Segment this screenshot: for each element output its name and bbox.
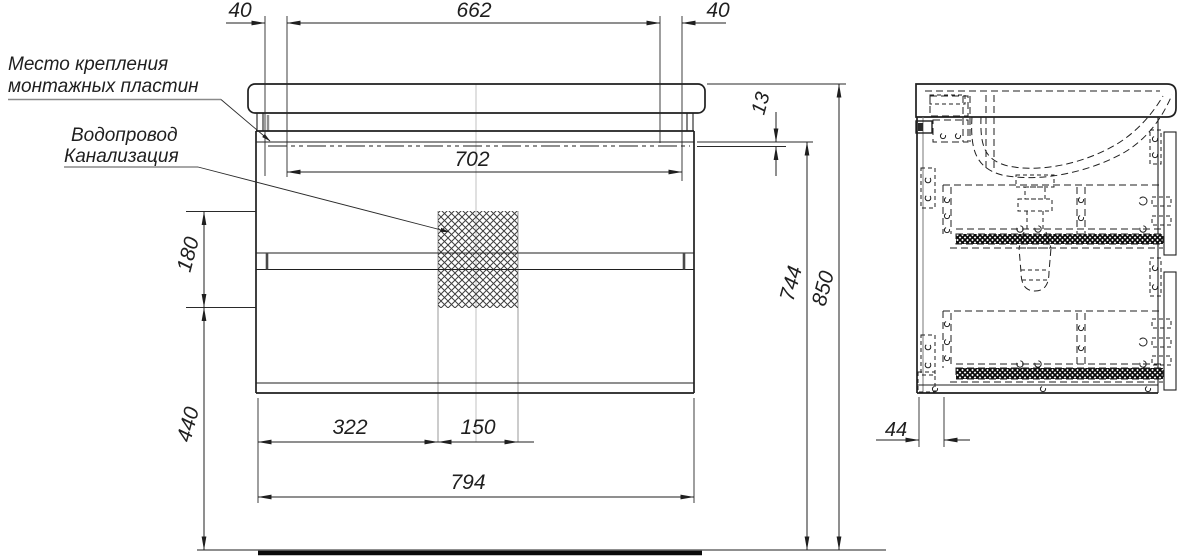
dim-44: 44 bbox=[876, 397, 970, 447]
side-view: 44 bbox=[876, 84, 1176, 447]
water-label-leader bbox=[198, 167, 449, 232]
technical-drawing-canvas: Место крепления монтажных пластин Водопр… bbox=[0, 0, 1184, 560]
dim-440-text: 440 bbox=[173, 404, 204, 444]
sewerage-label: Канализация bbox=[64, 146, 179, 167]
floor-line bbox=[197, 550, 886, 553]
dim-702: 702 bbox=[287, 148, 682, 172]
dim-180-text: 180 bbox=[173, 234, 204, 274]
dim-322-150: 322 150 bbox=[258, 398, 534, 503]
upper-drawer-hidden bbox=[943, 185, 1163, 248]
front-view bbox=[248, 84, 705, 442]
dim-662: 662 bbox=[456, 0, 491, 22]
mounting-bracket-hidden bbox=[916, 96, 970, 142]
vanity-drawing-svg: Место крепления монтажных пластин Водопр… bbox=[0, 0, 1184, 560]
countertop-stubs bbox=[257, 113, 693, 131]
dim-180-440: 180 440 bbox=[173, 212, 256, 551]
dim-744: 744 bbox=[776, 142, 807, 550]
callouts: Место крепления монтажных пластин Водопр… bbox=[8, 54, 449, 232]
dim-850-text: 850 bbox=[808, 268, 839, 308]
dim-794-text: 794 bbox=[450, 471, 485, 494]
basin-hidden-outline bbox=[972, 95, 1172, 178]
upper-slide-rail bbox=[956, 234, 1163, 244]
dim-744-text: 744 bbox=[776, 264, 807, 304]
mounting-plates-label-line1: Место крепления bbox=[8, 54, 168, 75]
dim-702-text: 702 bbox=[454, 148, 489, 171]
dim-40-right: 40 bbox=[706, 0, 730, 22]
water-supply-label: Водопровод bbox=[71, 125, 177, 146]
hatch-service-area bbox=[438, 211, 518, 308]
back-wall-clips bbox=[918, 168, 935, 392]
dim-44-text: 44 bbox=[885, 419, 907, 441]
lower-slide-rail bbox=[956, 368, 1163, 379]
drain-trap-hidden bbox=[1016, 175, 1054, 291]
dim-13-text: 13 bbox=[748, 90, 775, 117]
dim-322-text: 322 bbox=[332, 416, 367, 439]
lower-drawer-front-side bbox=[1164, 272, 1176, 390]
countertop-side bbox=[916, 84, 1176, 117]
dim-13: 13 bbox=[697, 90, 813, 176]
upper-drawer-front-side bbox=[1164, 132, 1176, 255]
lower-drawer-hidden bbox=[932, 311, 1163, 392]
dim-150-text: 150 bbox=[460, 416, 495, 439]
dim-40-left: 40 bbox=[228, 0, 252, 22]
mounting-plates-label-line2: монтажных пластин bbox=[8, 76, 199, 97]
dim-top-chain: 40 662 40 bbox=[226, 0, 730, 23]
